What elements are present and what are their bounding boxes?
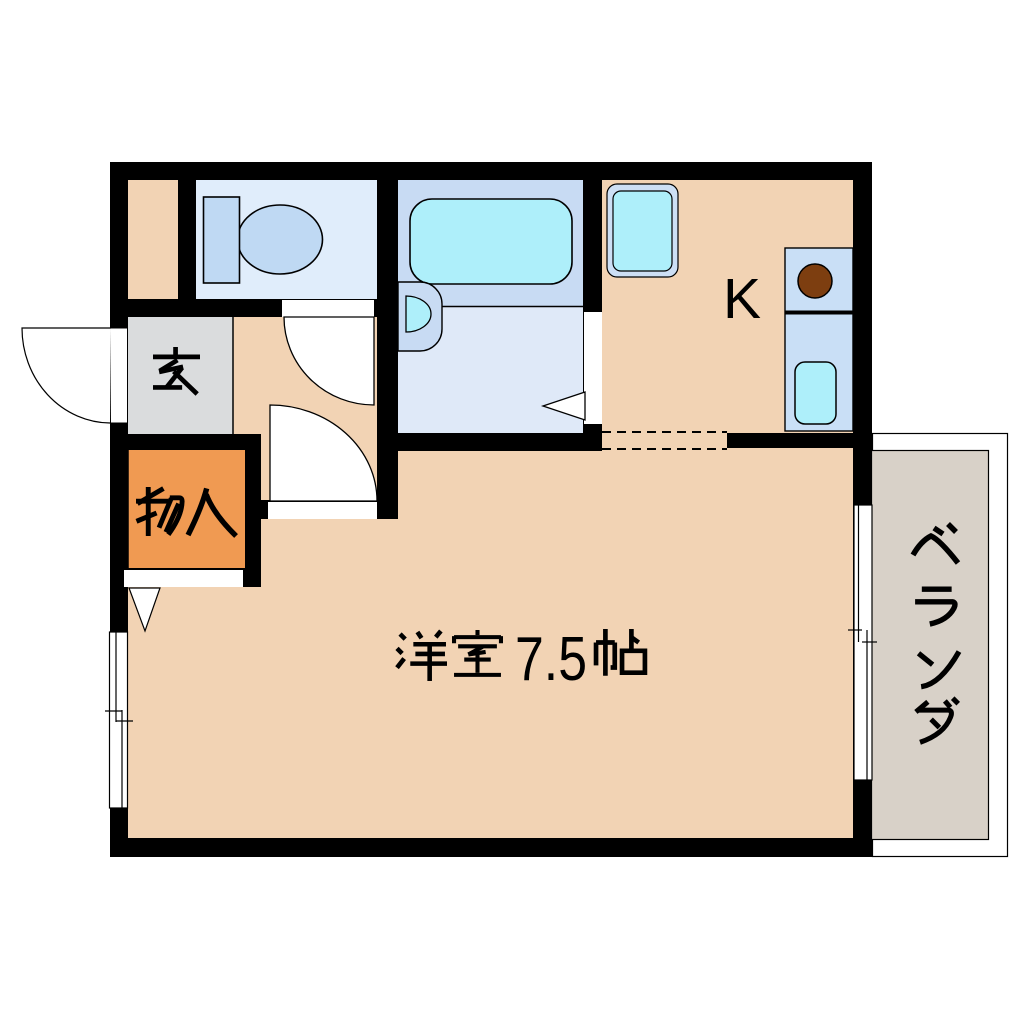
svg-text:7.5: 7.5 [515, 625, 587, 694]
svg-text:K: K [723, 267, 761, 331]
